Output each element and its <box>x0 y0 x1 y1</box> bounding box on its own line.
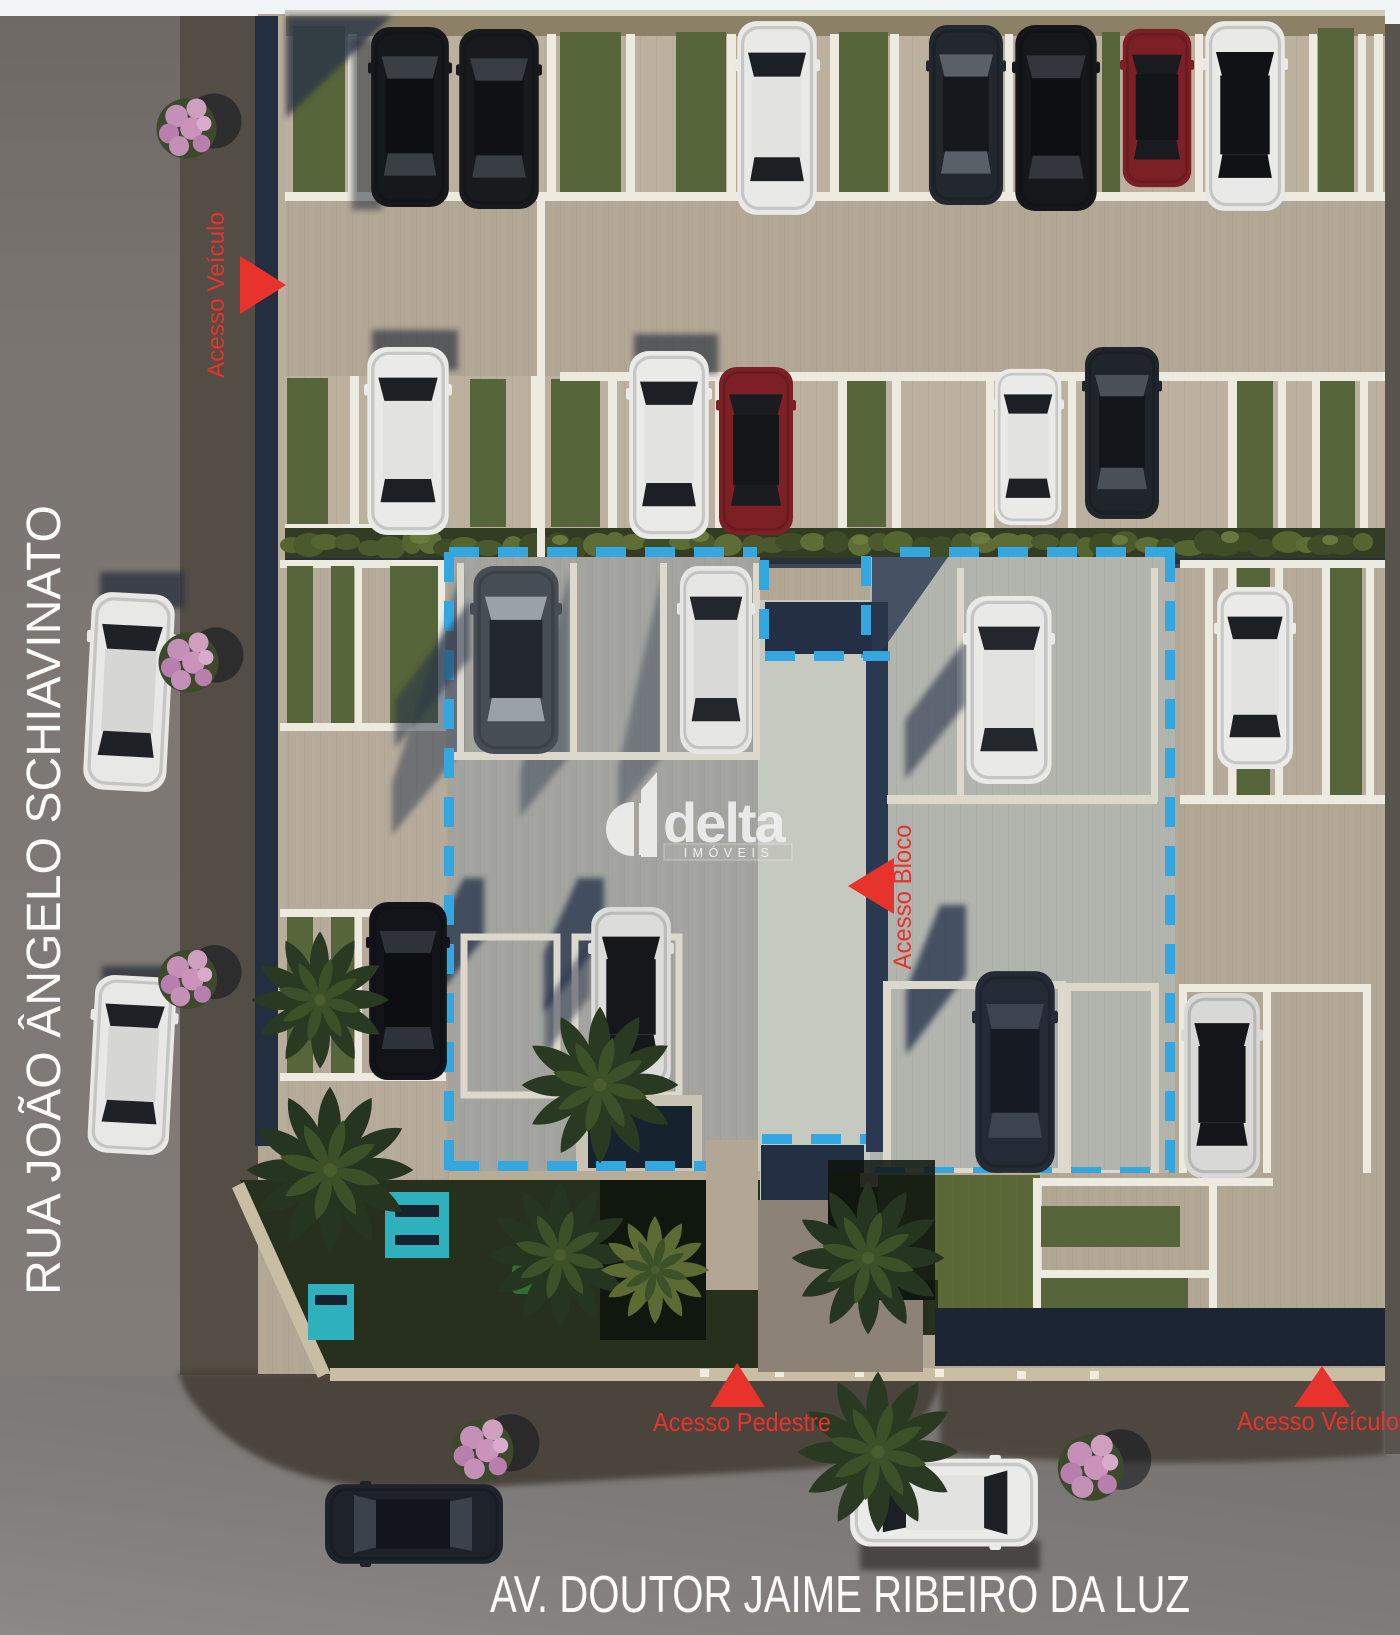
svg-text:IMÓVEIS: IMÓVEIS <box>684 845 775 860</box>
svg-text:Acesso Veículo: Acesso Veículo <box>1237 1406 1399 1436</box>
svg-text:AV. DOUTOR JAIME RIBEIRO DA LU: AV. DOUTOR JAIME RIBEIRO DA LUZ <box>490 1566 1190 1624</box>
svg-text:Acesso Bloco: Acesso Bloco <box>889 825 917 970</box>
svg-text:Acesso Veículo: Acesso Veículo <box>203 212 230 378</box>
svg-text:RUA JOÃO ÂNGELO SCHIAVINATO: RUA JOÃO ÂNGELO SCHIAVINATO <box>17 505 71 1295</box>
svg-text:Acesso Pedestre: Acesso Pedestre <box>653 1407 831 1437</box>
